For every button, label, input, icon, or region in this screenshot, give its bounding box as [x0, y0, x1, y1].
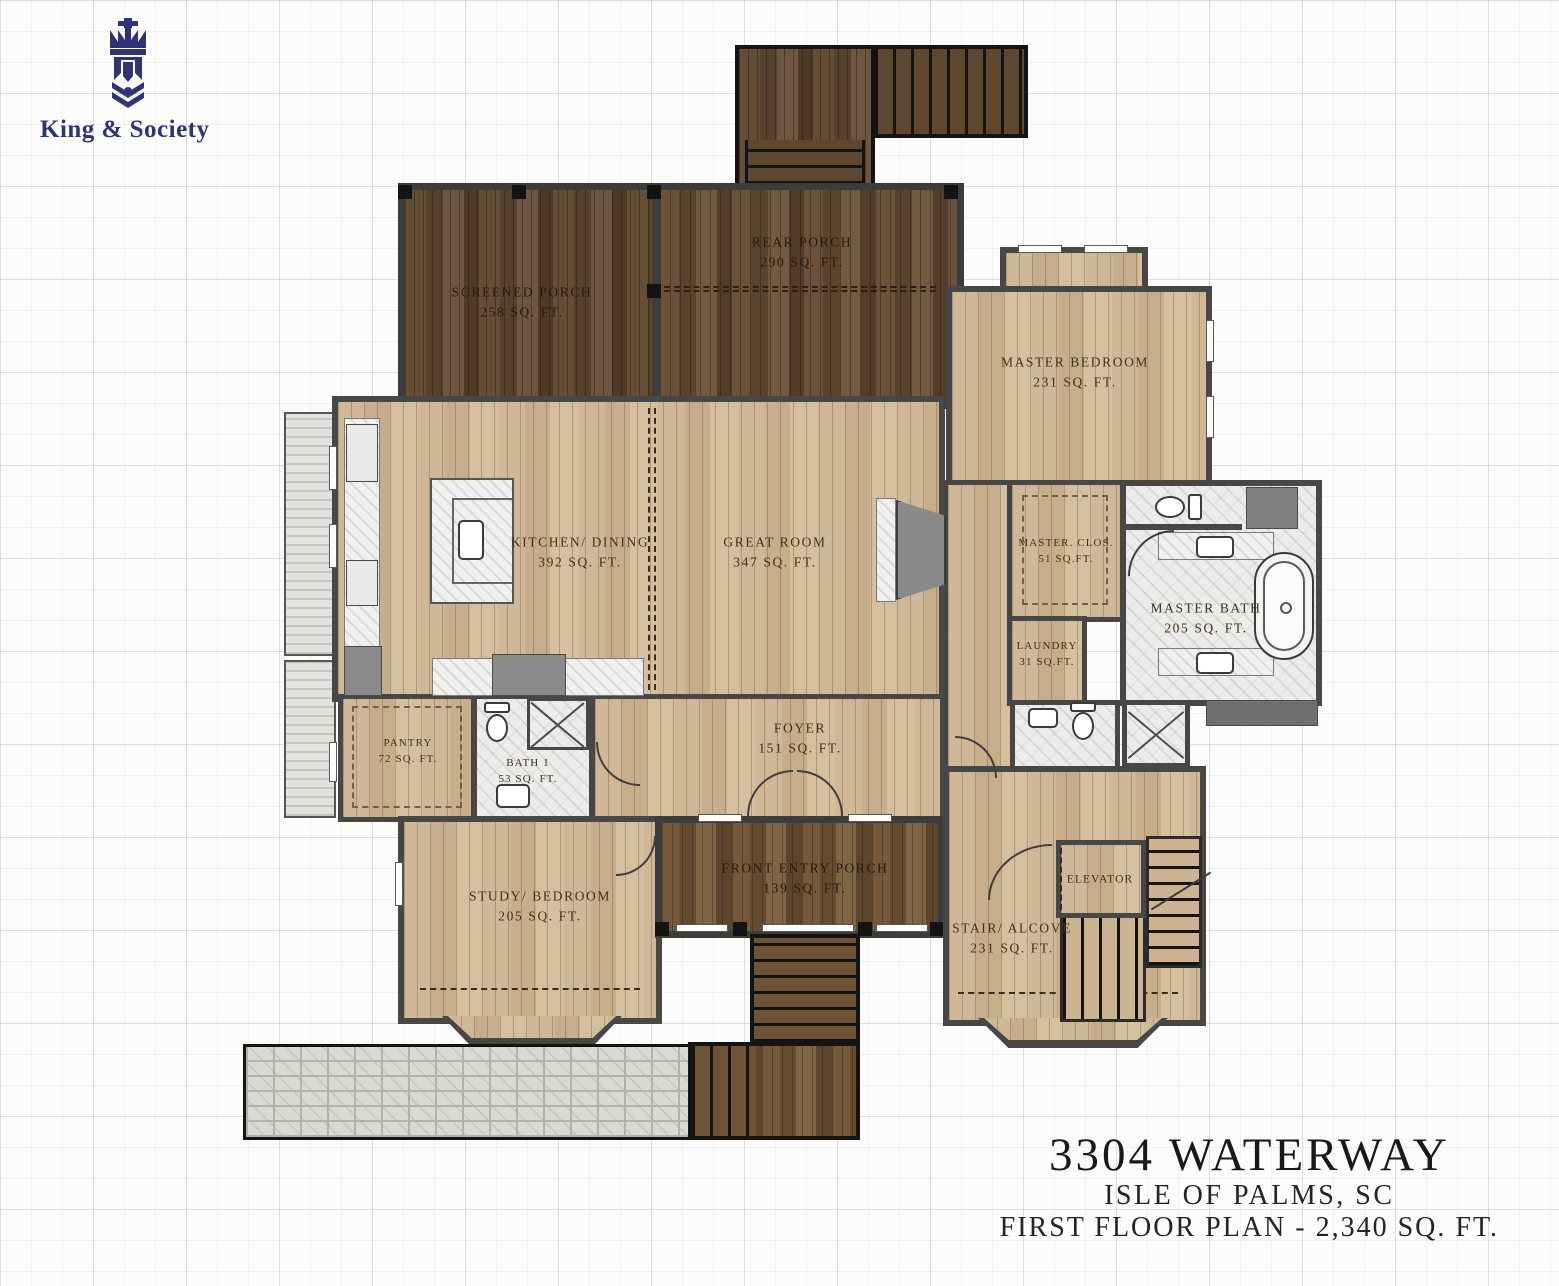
window [1084, 245, 1128, 253]
shower-icon [1122, 700, 1190, 768]
interior-stairs-side [1146, 836, 1202, 968]
porch-post [512, 185, 526, 199]
porch-divider-dashed-line [664, 286, 936, 292]
title-block: 3304 WATERWAY ISLE OF PALMS, SC FIRST FL… [1000, 1131, 1499, 1244]
powder-sink-icon [1028, 708, 1058, 728]
king-chess-piece-icon [98, 18, 158, 110]
rear-porch-room [653, 183, 964, 409]
interior-stairs-down [1060, 918, 1146, 1022]
room-area: 205 SQ. FT. [1151, 618, 1262, 638]
porch-post [398, 185, 412, 199]
brand-name: King & Society [40, 116, 300, 144]
room-name: MASTER. CLOS. [1018, 537, 1113, 549]
label-laundry: LAUNDRY 31 SQ.FT. [1017, 639, 1078, 671]
label-screened-porch: SCREENED PORCH 258 SQ. FT. [452, 282, 593, 321]
window [1018, 245, 1062, 253]
label-master-bedroom: MASTER BEDROOM 231 SQ. FT. [1001, 352, 1149, 391]
toilet-tank-icon [484, 702, 510, 713]
room-area: 51 SQ.FT. [1018, 552, 1113, 568]
study-bay-window-floor [448, 1016, 616, 1038]
toilet-icon [1155, 496, 1185, 518]
room-name: ELEVATOR [1067, 874, 1134, 886]
label-foyer: FOYER 151 SQ. FT. [758, 718, 841, 757]
wall-oven-icon [346, 560, 378, 606]
label-master-closet: MASTER. CLOS. 51 SQ.FT. [1018, 536, 1113, 568]
toilet-room-wall [1126, 524, 1242, 530]
label-great-room: GREAT ROOM 347 SQ. FT. [723, 532, 826, 571]
vanity-sink-icon [1196, 652, 1234, 674]
brand-logo: King & Society [40, 18, 300, 148]
room-area: 53 SQ. FT. [498, 772, 557, 788]
room-name: FOYER [774, 720, 826, 735]
room-name: MASTER BEDROOM [1001, 354, 1149, 369]
label-front-entry-porch: FRONT ENTRY PORCH 139 SQ. FT. [722, 858, 889, 897]
elevator-door-dashed [1060, 848, 1062, 910]
porch-post [733, 922, 747, 936]
fireplace-hearth [876, 498, 896, 602]
room-area: 258 SQ. FT. [452, 302, 593, 322]
porch-post [655, 922, 669, 936]
kitchen-cabinet [344, 646, 382, 696]
window [1206, 320, 1214, 362]
window [1206, 396, 1214, 438]
refrigerator-icon [346, 424, 378, 482]
room-name: KITCHEN/ DINING [511, 534, 649, 549]
porch-post [944, 185, 958, 199]
porch-railing-window [762, 924, 854, 932]
label-study-bedroom: STUDY/ BEDROOM 205 SQ. FT. [469, 886, 611, 925]
room-area: 72 SQ. FT. [378, 752, 437, 768]
window [329, 742, 337, 782]
bench-cabinet [1206, 700, 1318, 726]
fireplace-firebox [896, 500, 946, 600]
porch-railing-window [676, 924, 728, 932]
plan-location: ISLE OF PALMS, SC [1000, 1180, 1499, 1212]
room-area: 31 SQ.FT. [1017, 655, 1078, 671]
room-area: 205 SQ. FT. [469, 906, 611, 926]
plan-title-line: FIRST FLOOR PLAN - 2,340 SQ. FT. [1000, 1212, 1499, 1244]
porch-railing-window [876, 924, 928, 932]
label-pantry: PANTRY 72 SQ. FT. [378, 736, 437, 768]
front-door-sidelight [848, 814, 892, 822]
room-name: FRONT ENTRY PORCH [722, 860, 889, 875]
porch-post [647, 185, 661, 199]
window [395, 862, 403, 906]
shower-icon [527, 698, 589, 750]
room-name: SCREENED PORCH [452, 284, 593, 299]
room-area: 290 SQ. FT. [752, 252, 852, 272]
room-name: MASTER BATH [1151, 600, 1262, 615]
window [329, 446, 337, 490]
island-sink-icon [458, 520, 484, 560]
porch-post [858, 922, 872, 936]
rear-deck-stairs [871, 45, 1028, 138]
side-platform-hatch [284, 660, 336, 818]
room-area: 151 SQ. FT. [758, 738, 841, 758]
front-steps-landing [688, 1042, 860, 1140]
room-name: STAIR/ ALCOVE [952, 920, 1072, 935]
front-steps-side [692, 1046, 756, 1136]
label-elevator: ELEVATOR [1067, 872, 1134, 889]
room-name: BATH 1 [506, 757, 550, 769]
label-master-bath: MASTER BATH 205 SQ. FT. [1151, 598, 1262, 637]
porch-post [647, 284, 661, 298]
range-icon [492, 654, 566, 696]
bathtub-icon [1254, 552, 1314, 660]
room-name: LAUNDRY [1017, 640, 1078, 652]
label-stair-alcove: STAIR/ ALCOVE 231 SQ. FT. [952, 918, 1072, 957]
porch-post [930, 922, 944, 936]
kitchen-greatroom-dashed-opening [648, 408, 656, 690]
toilet-icon [486, 714, 508, 742]
window [329, 524, 337, 568]
toilet-tank-icon [1188, 494, 1202, 520]
vanity-sink-icon [1196, 536, 1234, 558]
room-area: 347 SQ. FT. [723, 552, 826, 572]
label-rear-porch: REAR PORCH 290 SQ. FT. [752, 232, 852, 271]
room-name: REAR PORCH [752, 234, 852, 249]
room-name: GREAT ROOM [723, 534, 826, 549]
room-area: 392 SQ. FT. [511, 552, 649, 572]
paver-walkway [243, 1044, 691, 1140]
floor-plan-sheet: { "brand": { "name": "King & Society" },… [0, 0, 1559, 1286]
front-door-sidelight [698, 814, 742, 822]
toilet-icon [1072, 712, 1094, 740]
rear-hall [943, 480, 1015, 772]
label-bath1: BATH 1 53 SQ. FT. [498, 756, 557, 788]
room-name: PANTRY [384, 737, 433, 749]
room-area: 231 SQ. FT. [952, 938, 1072, 958]
room-area: 139 SQ. FT. [722, 878, 889, 898]
study-bay-dashed-line [420, 988, 640, 990]
label-kitchen-dining: KITCHEN/ DINING 392 SQ. FT. [511, 532, 649, 571]
room-area: 231 SQ. FT. [1001, 372, 1149, 392]
room-name: STUDY/ BEDROOM [469, 888, 611, 903]
plan-address: 3304 WATERWAY [1000, 1131, 1499, 1180]
toilet-tank-icon [1070, 702, 1096, 712]
bath-chase [1246, 487, 1298, 529]
front-steps-down [750, 934, 860, 1046]
